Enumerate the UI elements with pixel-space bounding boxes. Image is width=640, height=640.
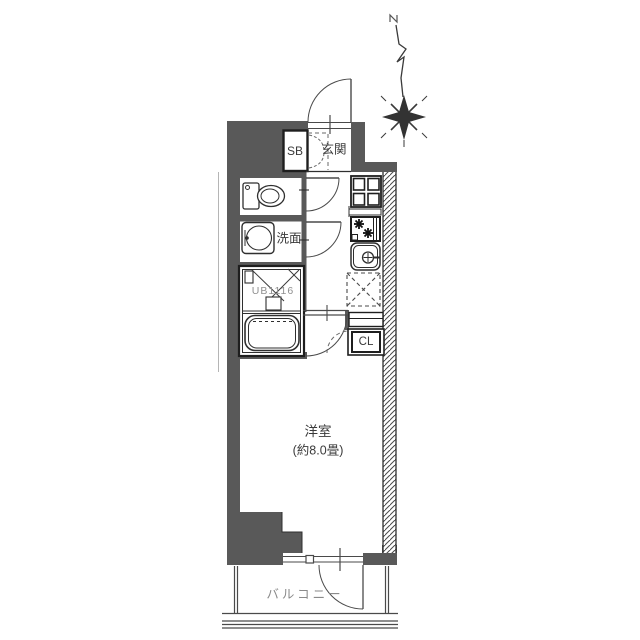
door-handle: [306, 556, 314, 564]
bathtub-icon: [245, 316, 299, 351]
wall-entrance-right: [351, 122, 365, 167]
north-letter: [390, 15, 397, 22]
door-swing-arc: [306, 222, 341, 257]
toilet: [243, 178, 339, 211]
wall-top-left-block: [227, 121, 283, 171]
burner: [354, 219, 364, 229]
burner: [363, 228, 373, 238]
hatched-right-wall: [383, 172, 396, 553]
compass-star: [382, 95, 426, 140]
floor-plan-drawing: [0, 0, 640, 640]
counter-edge: [349, 209, 381, 215]
washroom-label: 洗面: [276, 228, 301, 247]
faucet-dot: [245, 236, 249, 240]
shelf: [349, 313, 383, 327]
kitchen: [347, 176, 381, 306]
bath-door-handle: [266, 297, 281, 310]
floor-plan: SB 玄関 洗面 UB1116 CL 洋室 (約8.0畳) バルコニー: [0, 0, 640, 640]
wall-kitchen-top: [351, 162, 397, 172]
kitchen-sink-icon: [351, 243, 380, 270]
vanity-sink-icon: [247, 226, 272, 250]
entrance-door: [308, 79, 351, 134]
door-swing-arc: [306, 178, 339, 211]
unit-bath: [239, 266, 304, 356]
closet-door-arc: [327, 331, 349, 353]
shoe-box-label: SB: [287, 144, 303, 158]
stove-icon: [351, 217, 380, 241]
main-room-door: [303, 305, 348, 356]
closet: [327, 313, 384, 356]
unit-bath-label: UB1116: [252, 285, 294, 297]
main-room-label: 洋室: [305, 420, 332, 440]
closet-label: CL: [359, 336, 374, 348]
washing-machine-pan-icon: [351, 176, 381, 207]
wall-top: [283, 121, 308, 130]
door-swing-arc: [306, 315, 347, 356]
wall-toilet-washroom: [240, 215, 306, 222]
compass-needle: [396, 25, 406, 97]
entrance-label: 玄関: [321, 139, 346, 158]
balcony-label: バルコニー: [266, 584, 343, 603]
main-room-size-label: (約8.0畳): [293, 440, 344, 459]
north-arrow-icon: [381, 15, 427, 147]
refrigerator-space-icon: [347, 273, 380, 306]
